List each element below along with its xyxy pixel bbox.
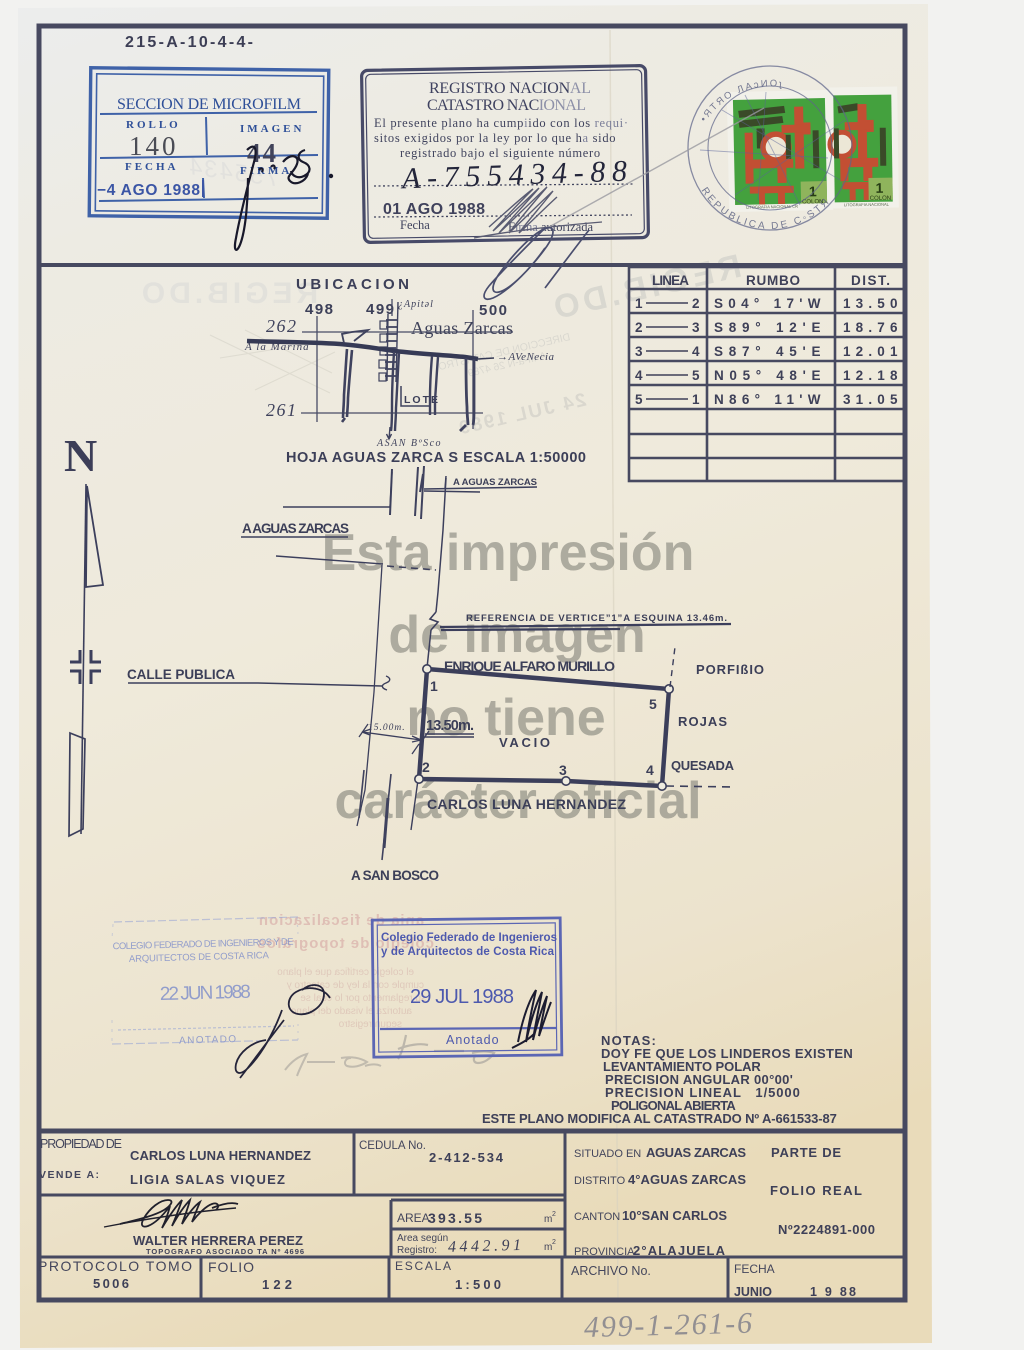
svg-text:VENDE A:: VENDE A: (39, 1169, 99, 1181)
svg-text:su reglamento por lo cual se: su reglamento por lo cual se (300, 993, 426, 1004)
svg-text:CARLOS LUNA HERNANDEZ: CARLOS LUNA HERNANDEZ (130, 1148, 311, 1163)
svg-text:FOLIO: FOLIO (208, 1259, 254, 1275)
svg-text:→AVeNecia: →AVeNecia (497, 351, 555, 363)
svg-text:N: N (64, 430, 97, 481)
svg-text:1: 1 (635, 296, 644, 311)
svg-text:registrado bajo el siguiente n: registrado bajo el siguiente número (400, 146, 601, 160)
svg-text:LINEA: LINEA (652, 273, 689, 288)
svg-text:4: 4 (635, 368, 644, 383)
svg-text:PROTOCOLO TOMO: PROTOCOLO TOMO (38, 1258, 192, 1274)
svg-text:FECHA: FECHA (734, 1262, 775, 1276)
svg-text:IMAGEN: IMAGEN (240, 123, 304, 135)
svg-text:Fecha: Fecha (400, 218, 430, 232)
svg-text:2: 2 (635, 320, 644, 335)
svg-text:ENRIQUE ALFARO MURILLO: ENRIQUE ALFARO MURILLO (444, 658, 615, 674)
svg-text:10°SAN CARLOS: 10°SAN CARLOS (622, 1208, 727, 1223)
svg-text:LITOGRAFIA NACIONAL: LITOGRAFIA NACIONAL (844, 202, 890, 208)
svg-text:01 AGO 1988: 01 AGO 1988 (383, 201, 485, 218)
svg-text:15.00m.: 15.00m. (368, 723, 406, 733)
svg-text:2-412-534: 2-412-534 (429, 1150, 504, 1165)
svg-text:5: 5 (692, 368, 701, 383)
svg-text:CARLOS LUNA HERNANDEZ: CARLOS LUNA HERNANDEZ (427, 796, 626, 812)
svg-text:13.50m.: 13.50m. (426, 718, 474, 734)
svg-text:499-1-261-6: 499-1-261-6 (584, 1307, 753, 1344)
svg-text:2: 2 (422, 759, 430, 775)
svg-text:31.05: 31.05 (843, 392, 899, 407)
svg-text:Aguas Zarcas: Aguas Zarcas (411, 318, 513, 338)
svg-text:4°AGUAS ZARCAS: 4°AGUAS ZARCAS (628, 1172, 746, 1187)
svg-text:140: 140 (129, 131, 179, 161)
svg-text:3: 3 (635, 344, 644, 359)
svg-text:autoriza el visado del plano: autoriza el visado del plano (290, 1006, 412, 1017)
svg-text:N05° 48'E: N05° 48'E (714, 368, 822, 383)
svg-text:Esta impresión: Esta impresión (322, 524, 695, 582)
svg-text:REFERENCIA DE VERTICE”1”A ESQU: REFERENCIA DE VERTICE”1”A ESQUINA 13.46m… (466, 613, 727, 624)
svg-text:5: 5 (635, 392, 644, 407)
svg-text:El presente plano ha cumpiido: El presente plano ha cumpiido con los re… (374, 116, 629, 130)
svg-text:QUESADA: QUESADA (671, 758, 735, 773)
svg-text:S87° 45'E: S87° 45'E (714, 344, 822, 359)
svg-text:AREA: AREA (397, 1211, 430, 1225)
svg-text:ESTE PLANO MODIFICA AL CATASTR: ESTE PLANO MODIFICA AL CATASTRADO Nº A-6… (482, 1111, 838, 1126)
svg-text:CANTON: CANTON (574, 1211, 620, 1223)
svg-text:2: 2 (692, 296, 701, 311)
svg-text:CEDULA No.: CEDULA No. (359, 1140, 426, 1152)
svg-text:REGISTRO NACIONAL: REGISTRO NACIONAL (429, 80, 591, 97)
svg-text:PARTE DE: PARTE DE (771, 1145, 841, 1160)
svg-text:4: 4 (692, 344, 701, 359)
svg-text:SECCION DE MICROFILM: SECCION DE MICROFILM (117, 96, 301, 113)
svg-text:el colegio certifica que el pl: el colegio certifica que el plano (277, 967, 414, 978)
svg-text:REGIB.DO: REGIB.DO (138, 277, 318, 310)
svg-text:SITUADO EN: SITUADO EN (574, 1148, 641, 1160)
svg-text:500: 500 (479, 302, 509, 319)
svg-text:Nº2224891-000: Nº2224891-000 (778, 1222, 875, 1237)
svg-text:2: 2 (552, 1239, 556, 1246)
svg-text:Registro:: Registro: (397, 1245, 437, 1256)
svg-text:1:500: 1:500 (455, 1277, 501, 1292)
svg-text:HOJA AGUAS ZARCA S ESCALA 1:50: HOJA AGUAS ZARCA S ESCALA 1:50000 (286, 450, 586, 466)
svg-text:499: 499 (366, 301, 396, 318)
svg-text:AGUAS ZARCAS: AGUAS ZARCAS (646, 1145, 746, 1160)
svg-text:ASAN BºSco: ASAN BºSco (376, 438, 442, 449)
svg-text:A SAN BOSCO: A SAN BOSCO (351, 868, 439, 883)
svg-text:CALLE PUBLICA: CALLE PUBLICA (127, 667, 235, 682)
svg-text:DISTRITO: DISTRITO (574, 1175, 626, 1187)
svg-text:3: 3 (692, 320, 701, 335)
svg-text:261: 261 (266, 400, 298, 420)
svg-text:12.18: 12.18 (843, 368, 899, 383)
svg-text:JUNIO: JUNIO (734, 1285, 772, 1299)
svg-text:215-A-10-4-4-: 215-A-10-4-4- (125, 34, 253, 51)
svg-text:ANOTADO: ANOTADO (179, 1034, 236, 1046)
svg-text:TOPOGRAFO ASOCIADO TA Nº 4696: TOPOGRAFO ASOCIADO TA Nº 4696 (146, 1247, 304, 1256)
svg-text:ROJAS: ROJAS (678, 714, 727, 729)
svg-text:Colegio Federado de Ingenieros: Colegio Federado de Ingenieros (381, 932, 557, 944)
svg-text:RUMBO: RUMBO (746, 273, 800, 288)
svg-text:A AGUAS ZARCAS: A AGUAS ZARCAS (453, 477, 537, 488)
svg-text:22 JUN 1988: 22 JUN 1988 (160, 982, 252, 1005)
svg-text:Anotado: Anotado (446, 1033, 500, 1047)
svg-text:Area según: Area según (397, 1233, 448, 1244)
svg-text:UBICACION: UBICACION (296, 276, 414, 293)
svg-text:CATASTRO NACIONAL: CATASTRO NACIONAL (427, 97, 586, 114)
svg-text:4: 4 (646, 762, 654, 778)
svg-text:1: 1 (875, 180, 883, 196)
svg-text:262: 262 (266, 316, 298, 336)
svg-text:44: 44 (247, 138, 278, 168)
svg-text:PORFIßIO: PORFIßIO (696, 662, 764, 677)
svg-text:LIGIA SALAS VIQUEZ: LIGIA SALAS VIQUEZ (130, 1172, 285, 1187)
svg-text:−4 AGO 1988: −4 AGO 1988 (97, 182, 200, 199)
svg-text:ARCHIVO No.: ARCHIVO No. (571, 1264, 651, 1278)
svg-text:WALTER HERRERA PEREZ: WALTER HERRERA PEREZ (133, 1233, 303, 1248)
svg-text:12.01: 12.01 (843, 344, 899, 359)
svg-text:18.76: 18.76 (843, 320, 899, 335)
svg-text:ROLLO: ROLLO (126, 119, 181, 131)
svg-text:1: 1 (430, 678, 438, 694)
svg-text:2°ALAJUELA: 2°ALAJUELA (633, 1243, 726, 1258)
svg-text:PROPIEDAD DE: PROPIEDAD DE (40, 1137, 122, 1151)
svg-text:122: 122 (262, 1277, 292, 1292)
svg-text:2: 2 (552, 1211, 556, 1218)
svg-text:13.50: 13.50 (843, 296, 899, 311)
svg-text:VACIO: VACIO (499, 735, 550, 750)
svg-text:5: 5 (649, 696, 657, 712)
svg-text:FECHA: FECHA (125, 161, 179, 173)
svg-text:DIST.: DIST. (851, 273, 890, 288)
svg-text:3: 3 (559, 762, 567, 778)
svg-text:PROVINCIA: PROVINCIA (574, 1246, 635, 1258)
svg-text:sitos exigidos por la ley por: sitos exigidos por la ley por lo que ha … (374, 131, 616, 145)
svg-text:1: 1 (692, 392, 701, 407)
svg-text:498: 498 (305, 301, 335, 318)
svg-text:S89° 12'E: S89° 12'E (714, 320, 822, 335)
svg-text:¿Apitəl: ¿Apitəl (398, 299, 434, 310)
svg-text:1: 1 (809, 183, 817, 199)
svg-text:y de Arquitectos de Costa Rica: y de Arquitectos de Costa Rica (381, 946, 555, 958)
svg-text:29 JUL 1988: 29 JUL 1988 (410, 986, 514, 1008)
svg-text:cumple con la ley de catastro: cumple con la ley de catastro y (287, 980, 424, 991)
svg-text:A AGUAS ZARCAS: A AGUAS ZARCAS (242, 521, 349, 536)
